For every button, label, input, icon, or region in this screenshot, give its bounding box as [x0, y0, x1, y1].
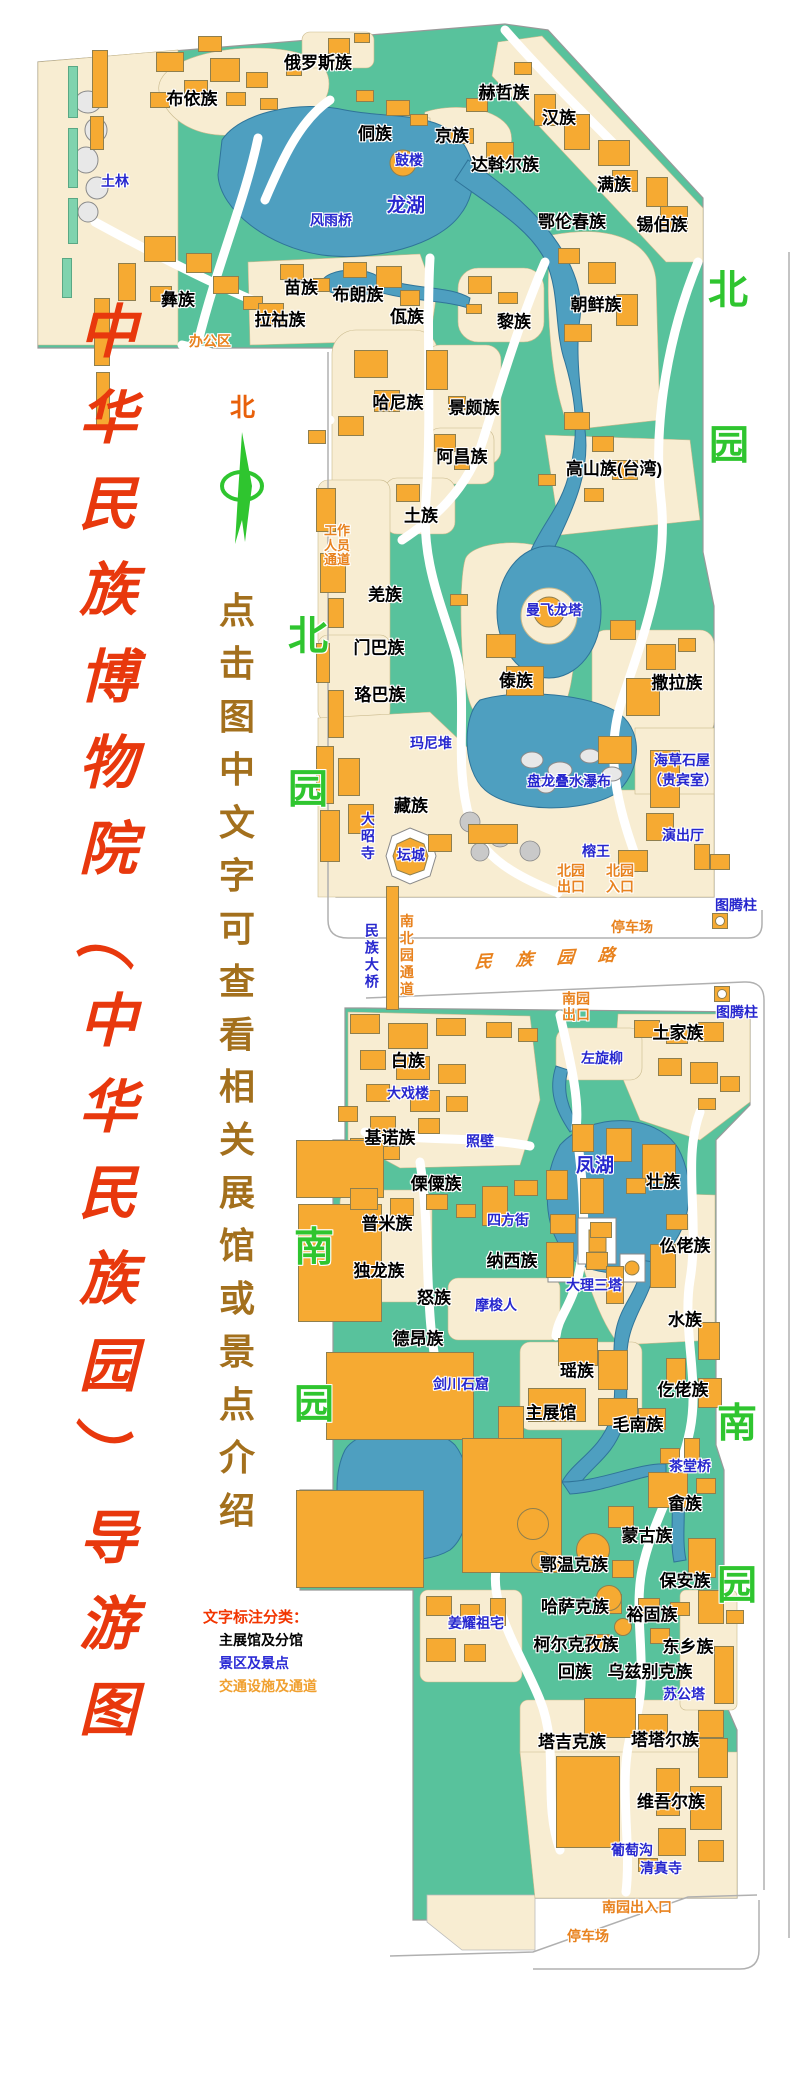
- map-label[interactable]: 达斡尔族: [471, 155, 539, 174]
- map-label[interactable]: 佤族: [390, 307, 424, 326]
- building: [390, 1198, 414, 1216]
- building: [386, 100, 410, 116]
- map-label[interactable]: 朝鲜族: [571, 295, 622, 314]
- map-label[interactable]: 北园 出口: [557, 863, 585, 894]
- map-label[interactable]: 侗族: [358, 124, 392, 143]
- title-char: 园: [79, 1319, 137, 1403]
- map-label[interactable]: 傈僳族: [411, 1174, 462, 1193]
- building: [564, 412, 590, 430]
- map-label[interactable]: 满族: [597, 175, 631, 194]
- map-label[interactable]: 纳西族: [487, 1251, 538, 1270]
- map-label[interactable]: 土林: [101, 174, 129, 190]
- building: [598, 140, 630, 166]
- legend-title: 文字标注分类：: [203, 1606, 317, 1629]
- building: [466, 304, 482, 314]
- title-char: 图: [79, 1663, 137, 1747]
- map-label[interactable]: 哈尼族: [373, 393, 424, 412]
- map-label[interactable]: 普米族: [362, 1214, 413, 1233]
- map-label[interactable]: 塔塔尔族: [631, 1730, 699, 1749]
- title-char: 图: [219, 688, 255, 740]
- building: [338, 758, 360, 796]
- building: [710, 854, 730, 870]
- compass-north-label: 北: [205, 388, 280, 424]
- building: [698, 1710, 724, 1738]
- map-label[interactable]: 瑶族: [560, 1361, 594, 1380]
- map-label[interactable]: 南北园通道: [398, 914, 414, 999]
- building: [186, 253, 212, 273]
- building: [518, 1028, 538, 1042]
- title-char: 民: [79, 1146, 137, 1230]
- map-label[interactable]: 高山族(台湾): [566, 459, 662, 478]
- map-label[interactable]: 保安族: [660, 1571, 711, 1590]
- map-label[interactable]: 锡伯族: [637, 215, 688, 234]
- parking-wedge: [427, 1895, 535, 1950]
- map-label[interactable]: 坛城: [397, 848, 425, 864]
- building: [418, 1118, 440, 1134]
- map-label[interactable]: 南园出入口: [602, 1900, 672, 1916]
- building: [564, 324, 592, 342]
- building: [350, 1188, 378, 1210]
- map-label[interactable]: 清真寺: [640, 1861, 682, 1877]
- map-label[interactable]: 鄂温克族: [540, 1555, 608, 1574]
- building: [320, 810, 340, 862]
- map-label[interactable]: 畲族: [668, 1494, 702, 1513]
- building: [586, 1252, 608, 1270]
- building: [296, 1490, 424, 1588]
- title-char: 介: [219, 1429, 255, 1481]
- title-char: 馆: [219, 1217, 255, 1269]
- title-char: 点: [219, 1376, 255, 1428]
- building: [92, 50, 108, 108]
- garden-strip: [68, 66, 78, 118]
- map-label[interactable]: 盘龙叠水瀑布: [527, 774, 611, 790]
- building: [584, 488, 604, 502]
- map-label[interactable]: 照壁: [466, 1134, 494, 1150]
- map-label[interactable]: 回族: [558, 1662, 592, 1681]
- building: [450, 594, 468, 606]
- building: [386, 886, 399, 1010]
- building: [446, 1096, 468, 1112]
- building: [658, 1828, 686, 1856]
- map-label[interactable]: 柯尔克孜族: [534, 1635, 619, 1654]
- building: [308, 430, 326, 444]
- map-label[interactable]: 阿昌族: [437, 447, 488, 466]
- building: [428, 834, 452, 852]
- map-label[interactable]: 基诺族: [365, 1128, 416, 1147]
- building: [550, 1214, 576, 1234]
- title-char: （: [66, 901, 150, 959]
- map-label[interactable]: 鼓楼: [395, 153, 423, 169]
- building: [90, 116, 104, 150]
- building: [426, 350, 448, 390]
- building: [598, 1350, 628, 1390]
- map-label: 南: [717, 1402, 757, 1447]
- map-label: 北: [288, 615, 328, 660]
- building: [580, 1178, 604, 1214]
- totem-pole-icon: [714, 986, 730, 1002]
- compass: 北: [205, 388, 280, 559]
- building: [610, 620, 636, 640]
- title-char: 中: [79, 974, 137, 1058]
- map-label[interactable]: 龙湖: [387, 195, 425, 216]
- map-label[interactable]: 曼飞龙塔: [526, 603, 582, 619]
- map-label[interactable]: 南园 出口: [562, 991, 590, 1022]
- map-label[interactable]: 仫佬族: [660, 1236, 711, 1255]
- building: [354, 33, 370, 43]
- building: [328, 598, 344, 628]
- map-label[interactable]: 维吾尔族: [637, 1792, 705, 1811]
- building: [698, 1098, 716, 1110]
- title-char: 相: [219, 1058, 255, 1110]
- title-char: 物: [79, 716, 137, 800]
- building: [326, 1352, 474, 1440]
- guide-map: 中华民族博物院（中华民族园）导游图 点击图中文字可查看相关展馆或景点介绍 北 文…: [0, 0, 800, 2091]
- map-label[interactable]: 玛尼堆: [410, 736, 452, 752]
- building: [426, 1194, 448, 1210]
- map-label[interactable]: 白族: [391, 1051, 425, 1070]
- map-label[interactable]: 办公区: [189, 334, 231, 350]
- building: [498, 292, 518, 304]
- building: [646, 644, 676, 670]
- map-label[interactable]: 葡萄沟: [611, 1843, 653, 1859]
- map-label[interactable]: 剑川石窟: [433, 1377, 489, 1393]
- map-label[interactable]: 怒族: [417, 1288, 451, 1307]
- map-label[interactable]: 拉祜族: [255, 310, 306, 329]
- title-char: 看: [219, 1006, 255, 1058]
- instruction-text: 点击图中文字可查看相关展馆或景点介绍: [214, 582, 260, 1534]
- title-char: 族: [79, 543, 137, 627]
- building: [210, 58, 240, 82]
- map-label[interactable]: 苗族: [284, 278, 318, 297]
- map-label[interactable]: （贵宾室）: [648, 773, 718, 789]
- title-char: 景: [219, 1323, 255, 1375]
- title-char: 博: [79, 630, 137, 714]
- building: [590, 1222, 612, 1238]
- map-label[interactable]: 水族: [668, 1310, 702, 1329]
- title-char: 华: [79, 371, 137, 455]
- title-char: 文: [219, 794, 255, 846]
- building: [456, 1204, 476, 1218]
- building: [156, 52, 184, 72]
- title-char: 点: [219, 582, 255, 634]
- map-label[interactable]: 榕王: [582, 844, 610, 860]
- map-label[interactable]: 大昭寺: [359, 812, 375, 863]
- compass-arrow-icon: [205, 424, 280, 554]
- building: [696, 1478, 716, 1494]
- map-label[interactable]: 黎族: [497, 312, 531, 331]
- title-char: 院: [79, 802, 137, 886]
- building: [612, 1560, 634, 1578]
- map-label[interactable]: 藏族: [394, 796, 428, 815]
- building: [666, 1214, 688, 1230]
- building: [350, 1014, 380, 1034]
- building: [486, 1022, 512, 1038]
- map-label[interactable]: 蒙古族: [622, 1526, 673, 1545]
- title-char: 导: [79, 1491, 137, 1575]
- title-char: 游: [79, 1577, 137, 1661]
- map-label[interactable]: 茶堂桥: [669, 1459, 711, 1475]
- legend: 文字标注分类： 主展馆及分馆 景区及景点 交通设施及通道: [203, 1606, 317, 1698]
- building: [592, 436, 614, 452]
- map-label[interactable]: 赫哲族: [479, 83, 530, 102]
- map-label[interactable]: 塔吉克族: [538, 1732, 606, 1751]
- map-label: 园: [717, 1564, 757, 1609]
- building: [698, 1840, 724, 1862]
- map-label[interactable]: 鄂伦春族: [538, 212, 606, 231]
- yurt-building: [517, 1508, 549, 1540]
- building: [720, 1076, 740, 1092]
- map-label[interactable]: 停车场: [567, 1929, 609, 1945]
- building: [558, 248, 580, 264]
- title-char: 展: [219, 1164, 255, 1216]
- map-label[interactable]: 东乡族: [663, 1637, 714, 1656]
- building: [572, 1124, 594, 1152]
- map-label[interactable]: 乌兹别克族: [608, 1662, 693, 1681]
- building: [546, 1242, 574, 1278]
- map-label[interactable]: 景颇族: [449, 398, 500, 417]
- building: [338, 416, 364, 436]
- title-char: 中: [79, 285, 137, 369]
- title-char: 查: [219, 953, 255, 1005]
- map-label[interactable]: 凤湖: [576, 1155, 614, 1176]
- map-label[interactable]: 毛南族: [613, 1415, 664, 1434]
- map-label[interactable]: 海草石屋: [654, 753, 710, 769]
- map-label[interactable]: 撒拉族: [652, 673, 703, 692]
- title-char: ）: [66, 1418, 150, 1476]
- map-label[interactable]: 傣族: [499, 671, 533, 690]
- map-label[interactable]: 四方街: [487, 1213, 529, 1229]
- building: [388, 1023, 428, 1049]
- map-label[interactable]: 图腾柱: [715, 898, 757, 914]
- building: [438, 1064, 466, 1084]
- map-label[interactable]: 左旋柳: [581, 1051, 623, 1067]
- map-label[interactable]: 主展馆: [526, 1403, 577, 1422]
- building: [678, 638, 696, 652]
- building: [343, 262, 367, 278]
- map-label[interactable]: 停车场: [611, 920, 653, 936]
- map-label[interactable]: 风雨桥: [310, 213, 352, 229]
- map-label: 北: [708, 269, 748, 314]
- building: [400, 290, 420, 306]
- map-label: 园: [709, 424, 749, 469]
- totem-pole-icon: [712, 913, 728, 929]
- map-label[interactable]: 德昂族: [393, 1329, 444, 1348]
- building: [694, 844, 710, 870]
- building: [546, 1170, 568, 1200]
- map-label[interactable]: 工作 人员 通道: [324, 524, 350, 568]
- building: [658, 1058, 682, 1076]
- map-label[interactable]: 京族: [435, 126, 469, 145]
- building: [338, 1106, 358, 1122]
- title-char: 可: [219, 900, 255, 952]
- building: [698, 1738, 728, 1778]
- map-label[interactable]: 俄罗斯族: [284, 53, 352, 72]
- building: [426, 1596, 452, 1616]
- map-label[interactable]: 布依族: [167, 89, 218, 108]
- building: [260, 98, 278, 110]
- building: [588, 262, 616, 284]
- building: [328, 38, 350, 54]
- map-label[interactable]: 门巴族: [354, 638, 405, 657]
- map-label: 南: [294, 1226, 334, 1271]
- building: [354, 350, 388, 378]
- map-label[interactable]: 羌族: [368, 585, 402, 604]
- building: [213, 276, 239, 294]
- building: [556, 1756, 620, 1848]
- map-label[interactable]: 姜耀祖宅: [448, 1616, 504, 1632]
- map-label[interactable]: 独龙族: [354, 1261, 405, 1280]
- map-label[interactable]: 珞巴族: [355, 685, 406, 704]
- building: [360, 1050, 386, 1070]
- building: [468, 276, 492, 294]
- map-label[interactable]: 摩梭人: [475, 1298, 517, 1314]
- legend-item-transport: 交通设施及通道: [203, 1675, 317, 1698]
- building: [396, 484, 420, 502]
- map-label[interactable]: 民族大桥: [363, 923, 379, 991]
- building: [144, 236, 176, 262]
- title-char: 或: [219, 1270, 255, 1322]
- map-label[interactable]: 北园 入口: [606, 863, 634, 894]
- title-char: 关: [219, 1111, 255, 1163]
- map-label[interactable]: 图腾柱: [716, 1005, 758, 1021]
- building: [356, 90, 374, 102]
- map-label: 园: [294, 1383, 334, 1428]
- legend-item-halls: 主展馆及分馆: [203, 1629, 317, 1652]
- building: [598, 736, 632, 764]
- title-char: 族: [79, 1232, 137, 1316]
- map-label[interactable]: 苏公塔: [663, 1687, 705, 1703]
- title-char: 民: [79, 457, 137, 541]
- building: [426, 1638, 456, 1662]
- building: [486, 634, 516, 658]
- building: [646, 177, 668, 207]
- map-label[interactable]: 演出厅: [662, 828, 704, 844]
- building: [538, 474, 556, 486]
- garden-strip: [68, 128, 78, 188]
- building: [436, 1018, 466, 1036]
- title-char: 中: [219, 741, 255, 793]
- page-title: 中华民族博物院（中华民族园）导游图: [48, 285, 168, 1747]
- map-label: 园: [288, 768, 328, 813]
- building: [410, 114, 428, 126]
- building: [726, 1610, 744, 1624]
- map-label[interactable]: 布朗族: [333, 285, 384, 304]
- building: [714, 1646, 734, 1704]
- building: [246, 72, 268, 88]
- title-char: 字: [219, 847, 255, 899]
- map-label[interactable]: 大戏楼: [387, 1086, 429, 1102]
- map-label[interactable]: 土家族: [653, 1023, 704, 1042]
- building: [468, 824, 518, 844]
- building: [690, 1062, 718, 1084]
- map-label[interactable]: 哈萨克族: [541, 1597, 609, 1616]
- map-label[interactable]: 土族: [404, 506, 438, 525]
- map-label[interactable]: 壮族: [646, 1172, 680, 1191]
- legend-item-scenic: 景区及景点: [203, 1652, 317, 1675]
- building: [328, 690, 344, 738]
- building: [514, 1180, 538, 1196]
- building: [626, 1178, 646, 1194]
- building: [608, 1506, 634, 1528]
- title-char: 击: [219, 635, 255, 687]
- building: [226, 92, 246, 106]
- map-label[interactable]: 汉族: [542, 108, 576, 127]
- building: [514, 62, 532, 75]
- garden-strip: [68, 198, 78, 244]
- map-label[interactable]: 大理三塔: [566, 1278, 622, 1294]
- map-label[interactable]: 仡佬族: [658, 1380, 709, 1399]
- map-label[interactable]: 裕固族: [627, 1605, 678, 1624]
- building: [464, 1644, 486, 1662]
- title-char: 绍: [219, 1482, 255, 1534]
- building: [198, 36, 222, 52]
- title-char: 华: [79, 1060, 137, 1144]
